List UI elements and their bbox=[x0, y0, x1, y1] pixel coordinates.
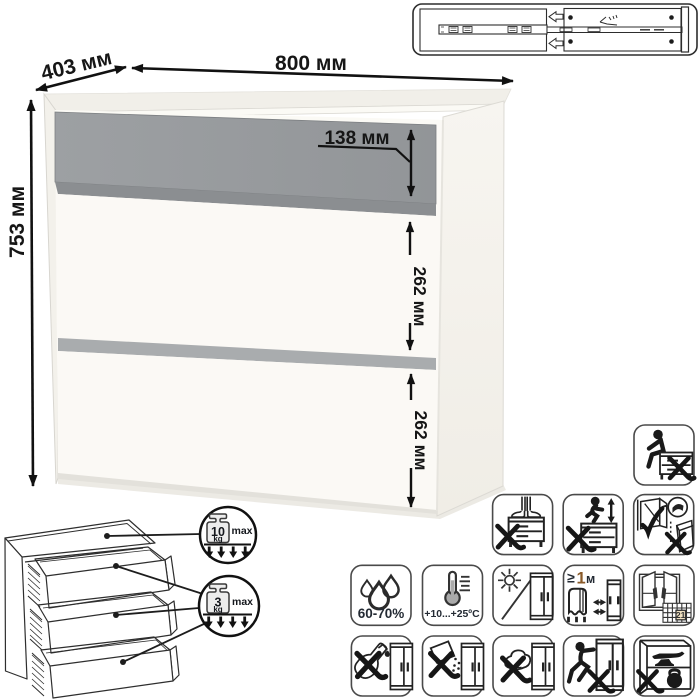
svg-text:262 мм: 262 мм bbox=[411, 411, 431, 471]
svg-text:138 мм: 138 мм bbox=[324, 128, 389, 149]
svg-text:max: max bbox=[232, 596, 253, 608]
svg-text:max: max bbox=[232, 525, 253, 537]
svg-text:kg: kg bbox=[213, 605, 222, 614]
svg-text:м: м bbox=[586, 572, 595, 586]
svg-text:800 мм: 800 мм bbox=[275, 52, 347, 75]
svg-text:21: 21 bbox=[676, 610, 686, 620]
svg-text:1: 1 bbox=[577, 569, 586, 587]
svg-text:≥: ≥ bbox=[567, 569, 575, 585]
svg-text:60-70%: 60-70% bbox=[358, 606, 405, 621]
svg-text:262 мм: 262 мм bbox=[410, 267, 430, 327]
svg-text:kg: kg bbox=[213, 535, 222, 544]
svg-text:753 мм: 753 мм bbox=[6, 186, 29, 258]
svg-text:+10...+25ºC: +10...+25ºC bbox=[424, 609, 480, 620]
